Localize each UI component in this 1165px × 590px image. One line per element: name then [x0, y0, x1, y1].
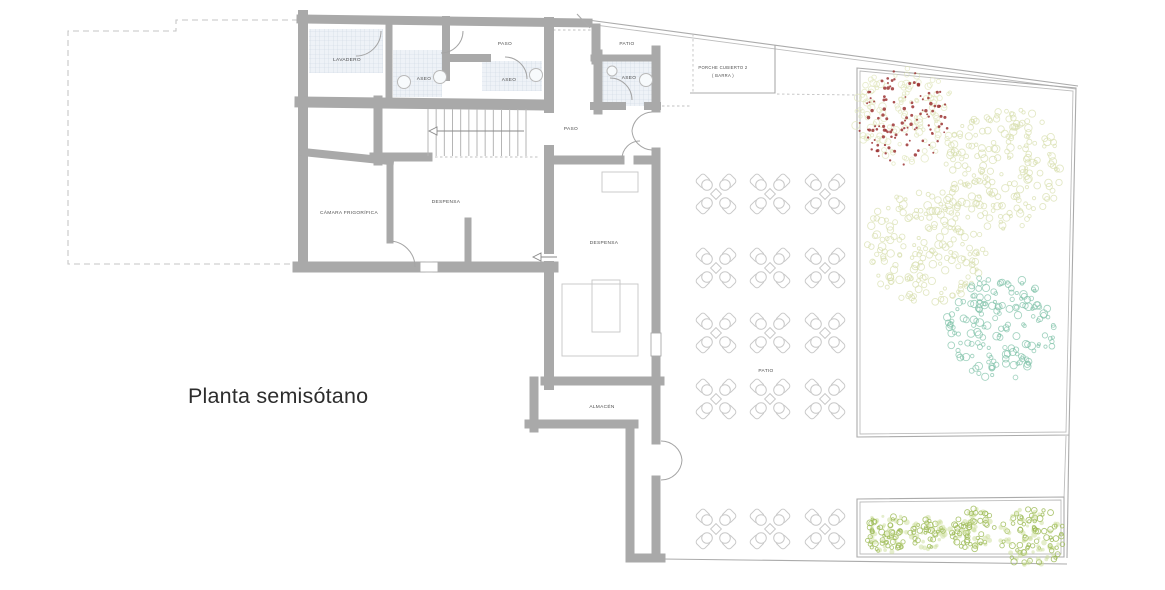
patio-bottom-line — [662, 559, 1067, 564]
chair-seat — [756, 533, 767, 544]
chair-seat — [756, 403, 767, 414]
patio-table — [695, 173, 737, 215]
chair-seat — [720, 403, 731, 414]
chair-seat — [720, 515, 731, 526]
chair-seat — [702, 515, 713, 526]
shelf-outer — [562, 284, 638, 356]
window-south-wall — [420, 262, 438, 272]
shelving — [562, 172, 638, 356]
wc-aseo1 — [434, 71, 447, 84]
patio-table — [695, 312, 737, 354]
chair-seat — [756, 385, 767, 396]
chair-seat — [811, 319, 822, 330]
chair-seat — [756, 319, 767, 330]
shelf-top — [602, 172, 638, 192]
double-door-lobby-top — [632, 112, 652, 131]
patio-table — [695, 508, 737, 550]
chair-seat — [811, 337, 822, 348]
room-label: PASO — [498, 41, 512, 47]
chair-seat — [829, 337, 840, 348]
table-top — [765, 263, 776, 274]
table-top — [765, 394, 776, 405]
table-top — [820, 189, 831, 200]
stair-arrowhead — [429, 127, 437, 135]
chair-seat — [829, 385, 840, 396]
chair-seat — [702, 337, 713, 348]
patio-door-bottom — [661, 460, 682, 480]
patio-table — [804, 247, 846, 289]
room-label: ALMACÉN — [589, 403, 615, 410]
wc-aseo3 — [640, 74, 653, 87]
chair-seat — [811, 180, 822, 191]
shelf-island — [592, 280, 620, 332]
chair-seat — [774, 198, 785, 209]
room-label: LAVADERO — [333, 57, 361, 63]
patio-table — [749, 173, 791, 215]
floor-plan-drawing: LAVADEROASEOPASOASEOPATIOASEOPORCHE CUBI… — [0, 0, 1165, 590]
wc-aseo2 — [530, 69, 543, 82]
room-label: PORCHE CUBIERTO 2 — [698, 65, 748, 70]
right-edge-lower-inner — [1064, 436, 1066, 499]
basin-aseo3 — [607, 66, 617, 76]
chair-seat — [720, 198, 731, 209]
table-top — [820, 263, 831, 274]
chair-seat — [774, 515, 785, 526]
chair-seat — [829, 254, 840, 265]
window-despensa — [651, 333, 661, 356]
patio-table — [695, 247, 737, 289]
tree-olive-large — [944, 108, 1063, 230]
chair-seat — [774, 403, 785, 414]
chair-seat — [829, 515, 840, 526]
patio-table — [804, 312, 846, 354]
chair-seat — [756, 272, 767, 283]
chair-seat — [774, 272, 785, 283]
chair-seat — [774, 319, 785, 330]
chair-seat — [720, 385, 731, 396]
chair-seat — [756, 254, 767, 265]
chair-seat — [774, 254, 785, 265]
windows — [420, 262, 661, 356]
chair-seat — [720, 272, 731, 283]
chair-seat — [811, 385, 822, 396]
patio-table — [804, 173, 846, 215]
patio-table — [749, 247, 791, 289]
table-top — [765, 524, 776, 535]
room-label: ASEO — [417, 76, 432, 82]
bush-2 — [908, 515, 948, 551]
chair-seat — [702, 272, 713, 283]
chair-seat — [756, 198, 767, 209]
chair-seat — [811, 515, 822, 526]
page-title: Planta semisótano — [188, 384, 368, 409]
chair-seat — [774, 385, 785, 396]
table-top — [820, 328, 831, 339]
dashed-site-outline — [68, 20, 298, 264]
chair-seat — [829, 272, 840, 283]
chair-seat — [774, 337, 785, 348]
chair-seat — [720, 533, 731, 544]
chair-seat — [811, 533, 822, 544]
exit-arrow — [533, 253, 557, 261]
double-door-lobby-bottom — [632, 131, 652, 150]
table-top — [711, 189, 722, 200]
table-top — [711, 328, 722, 339]
chair-seat — [702, 198, 713, 209]
basin-aseo1 — [398, 76, 411, 89]
chair-seat — [756, 180, 767, 191]
chair-seat — [774, 180, 785, 191]
floor-plan-page: LAVADEROASEOPASOASEOPATIOASEOPORCHE CUBI… — [0, 0, 1165, 590]
right-edge-lower — [1067, 435, 1069, 558]
table-top — [765, 328, 776, 339]
table-top — [820, 394, 831, 405]
chair-seat — [702, 533, 713, 544]
chair-seat — [702, 180, 713, 191]
chair-seat — [702, 403, 713, 414]
patio-table — [695, 378, 737, 420]
top-slope-line-inner — [588, 24, 1076, 89]
chair-seat — [829, 533, 840, 544]
table-top — [711, 263, 722, 274]
porch-dashed-right — [777, 94, 855, 95]
chair-seat — [702, 385, 713, 396]
patio-table — [804, 508, 846, 550]
chair-seat — [811, 254, 822, 265]
patio-table — [749, 312, 791, 354]
garden-border-outer — [857, 68, 1076, 437]
patio-tables-layer — [695, 173, 846, 550]
chair-seat — [720, 319, 731, 330]
staircase — [428, 109, 526, 156]
table-top — [765, 189, 776, 200]
chair-seat — [811, 198, 822, 209]
chair-seat — [774, 533, 785, 544]
bush-3 — [947, 506, 996, 552]
chair-seat — [811, 403, 822, 414]
room-label: ( BARRA ) — [712, 73, 734, 78]
room-label: ASEO — [502, 77, 517, 83]
chair-seat — [756, 515, 767, 526]
room-label: ASEO — [622, 75, 637, 81]
chair-seat — [720, 180, 731, 191]
chair-seat — [829, 403, 840, 414]
room-label: PATIO — [619, 41, 634, 47]
patio-table — [804, 378, 846, 420]
chair-seat — [829, 319, 840, 330]
patio-door-top — [661, 441, 682, 460]
chair-seat — [829, 198, 840, 209]
chair-seat — [829, 180, 840, 191]
room-label: DESPENSA — [432, 199, 461, 205]
lavadero-floor — [309, 29, 383, 73]
top-slope-line-outer — [588, 20, 1078, 86]
table-top — [711, 524, 722, 535]
tree-red-berries — [852, 66, 952, 165]
room-label: PATIO — [758, 368, 773, 374]
patio-table — [749, 378, 791, 420]
chair-seat — [756, 337, 767, 348]
room-label: DESPENSA — [590, 240, 619, 246]
chair-seat — [702, 319, 713, 330]
patio-table — [749, 508, 791, 550]
chair-seat — [720, 337, 731, 348]
vegetation-layer — [852, 66, 1065, 567]
room-label: CÁMARA FRIGORÍFICA — [320, 209, 378, 216]
table-top — [820, 524, 831, 535]
table-top — [711, 394, 722, 405]
bush-4 — [998, 507, 1064, 567]
chair-seat — [811, 272, 822, 283]
room-label: PASO — [564, 126, 578, 132]
chair-seat — [720, 254, 731, 265]
bush-1 — [866, 514, 910, 554]
chair-seat — [702, 254, 713, 265]
